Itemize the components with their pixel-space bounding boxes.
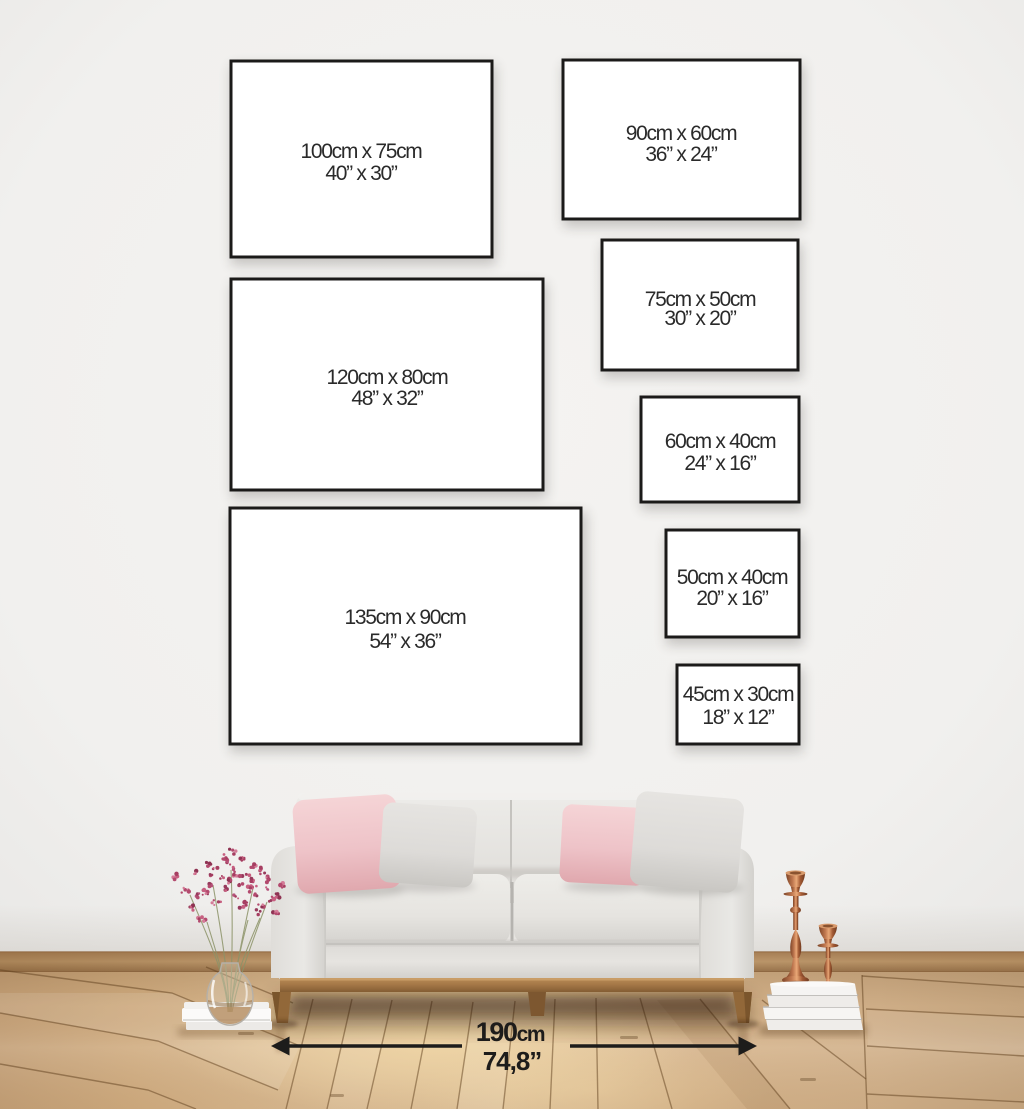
svg-text:45cm x 30cm: 45cm x 30cm: [683, 683, 794, 706]
svg-text:120cm x 80cm: 120cm x 80cm: [327, 366, 449, 389]
svg-text:24” x 16”: 24” x 16”: [684, 452, 756, 475]
svg-text:30” x 20”: 30” x 20”: [664, 307, 736, 330]
svg-text:50cm x 40cm: 50cm x 40cm: [677, 566, 788, 589]
svg-text:48” x 32”: 48” x 32”: [351, 387, 423, 410]
svg-text:90cm x 60cm: 90cm x 60cm: [626, 122, 737, 145]
svg-text:40” x 30”: 40” x 30”: [325, 162, 397, 185]
svg-text:74,8”: 74,8”: [483, 1046, 542, 1076]
svg-text:60cm x 40cm: 60cm x 40cm: [665, 430, 776, 453]
svg-text:135cm x 90cm: 135cm x 90cm: [345, 606, 467, 629]
svg-text:36” x 24”: 36” x 24”: [645, 143, 717, 166]
svg-text:18” x 12”: 18” x 12”: [702, 706, 774, 729]
svg-text:54” x 36”: 54” x 36”: [369, 630, 441, 653]
svg-text:20” x 16”: 20” x 16”: [696, 587, 768, 610]
svg-text:100cm x 75cm: 100cm x 75cm: [301, 140, 423, 163]
